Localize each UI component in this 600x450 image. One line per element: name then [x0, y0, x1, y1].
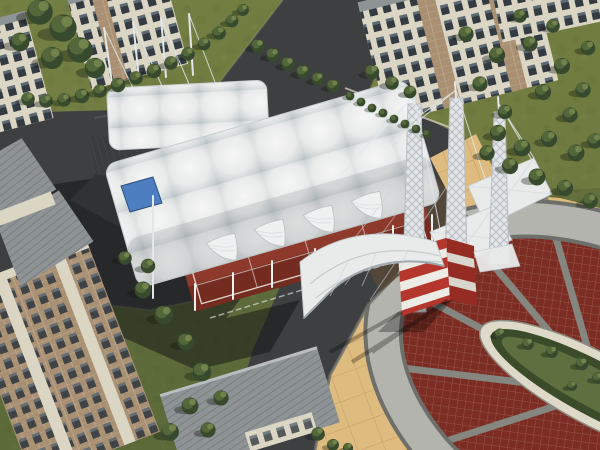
architectural-rendering	[0, 0, 600, 450]
